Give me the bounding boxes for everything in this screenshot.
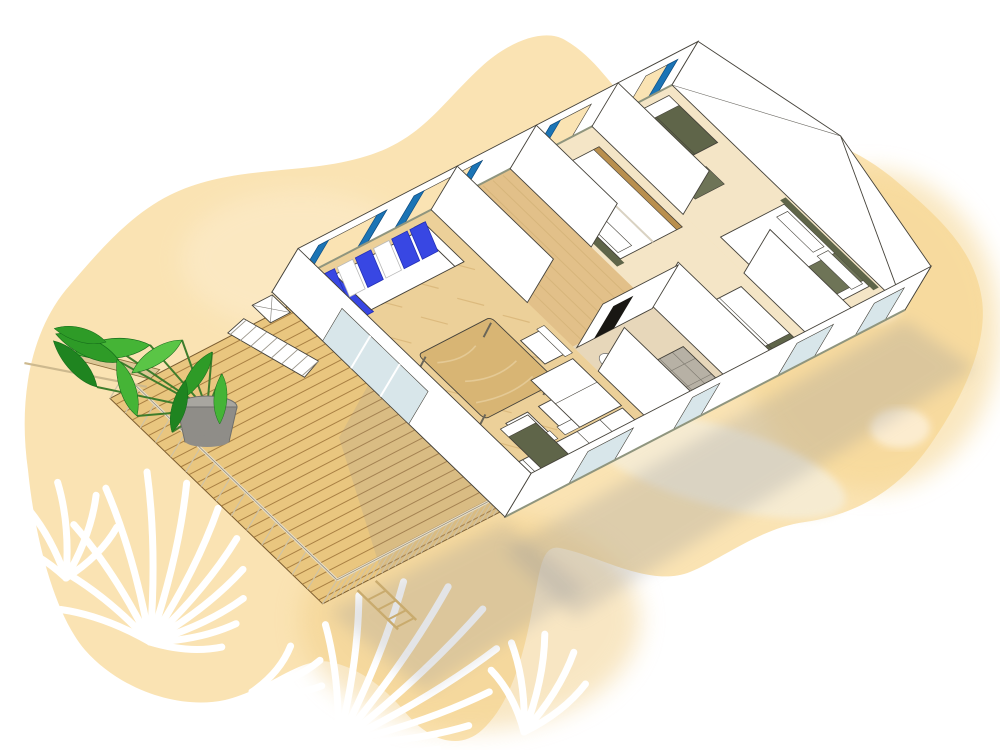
illustration-canvas [0, 0, 1000, 750]
floorplan-illustration [0, 0, 1000, 750]
